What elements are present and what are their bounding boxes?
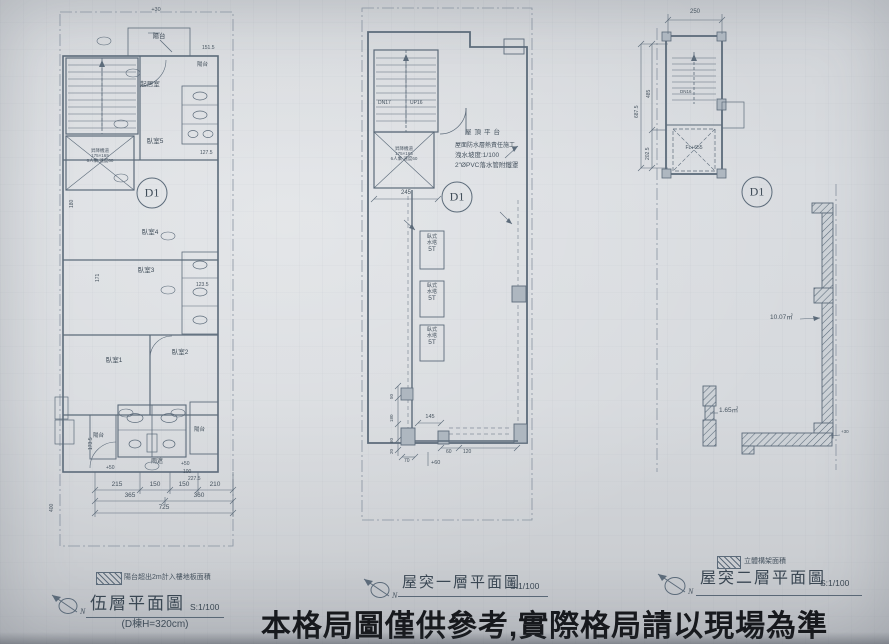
title-underline [696, 595, 862, 596]
room-label-bed2: 臥室2 [172, 350, 189, 357]
title-underline [398, 596, 548, 597]
legend-balcony-label: 陽台超出2m計入樓地板面積 [124, 574, 211, 581]
dim-label: 210 [210, 482, 221, 489]
room-label-bed3: 臥室3 [138, 268, 155, 275]
stair-dn-label: DN17 [378, 101, 391, 106]
unit-tag-d1: D1 [450, 191, 465, 204]
water-tank-label: 臥式 水塔 5T [421, 283, 443, 303]
plan-left-subtitle: (D棟H=320cm) [122, 620, 189, 631]
north-letter: N [688, 588, 693, 596]
dim-label: 151.5 [202, 46, 215, 51]
area-label-small: 1.65㎡ [719, 408, 738, 415]
room-label-canopy: 雨遮 [151, 459, 163, 465]
plan-left-shapes [55, 12, 236, 546]
water-tank-label: 臥式 水塔 5T [421, 234, 443, 254]
blueprint-page: 陽台 +30 151.5 127.5 123.5 起居室 陽台 臥室5 昇降機道… [0, 0, 889, 644]
dim-label: 120 [463, 450, 471, 455]
stair-up-label: UP16 [410, 101, 423, 106]
dim-label: 100 [183, 470, 191, 475]
room-label-bed5: 臥室5 [147, 139, 164, 146]
north-arrow-icon [658, 574, 685, 595]
floor-level-label: FL+655 [685, 146, 702, 151]
unit-tag-d1: D1 [145, 187, 160, 200]
tank-line3: 5T [421, 246, 443, 254]
dim-label: 250 [690, 9, 700, 15]
dim-label: +30 [151, 8, 160, 14]
plan-left-scale: S:1/100 [190, 603, 219, 612]
disclaimer-text: 本格局圖僅供參考,實際格局請以現場為準 [222, 601, 867, 644]
elevator-line3: 6人乘 速度60 [377, 156, 431, 161]
dim-label: 150 [179, 482, 190, 489]
note-roof-platform: 屋頂平台 [465, 130, 503, 137]
dim-label: 725 [159, 505, 170, 512]
dim-label: 150 [150, 482, 161, 489]
legend-frame-label: 立體構架面積 [744, 558, 786, 565]
room-label-balcony-right: 陽台 [197, 63, 208, 69]
room-label-balcony-bl: 陽台 [93, 434, 104, 440]
plan-right-scale: S:1/100 [820, 579, 849, 588]
room-label-living: 起居室 [140, 82, 160, 89]
stair-dn-label: DN16 [680, 90, 692, 95]
dim-label: 687.5 [635, 105, 640, 118]
dim-label: +50 [106, 466, 114, 471]
note-waterproofing: 屋面防水層熱責任施工 [455, 143, 515, 149]
dim-label: 171 [96, 274, 101, 282]
unit-tag-d1: D1 [750, 186, 765, 199]
water-tank-label: 臥式 水塔 5T [421, 327, 443, 347]
plan-left-title: 伍層平面圖 [90, 595, 185, 613]
north-arrow-icon [364, 579, 389, 598]
tank-line3: 5T [421, 295, 443, 303]
dim-label: 180 [390, 414, 395, 422]
room-label-bed1: 臥室1 [106, 358, 123, 365]
dim-label: 245 [401, 190, 411, 196]
floorplan-linework [0, 0, 889, 644]
dim-label: 60 [446, 450, 452, 455]
note-downspout: 2"ØPVC落水管附鐵罩 [455, 163, 518, 170]
area-label-big: 10.07㎡ [770, 315, 793, 322]
plan-right-title: 屋突二層平面圖 [700, 571, 826, 588]
legend-hatch-swatch [96, 572, 122, 585]
plan-right-shapes [638, 14, 840, 472]
elevator-shaft-label: 昇降機道 175×165 6人乘 速度60 [377, 146, 431, 162]
dim-label: 123.5 [196, 283, 209, 288]
room-label-bed4: 臥室4 [142, 230, 159, 237]
north-arrow-icon [52, 595, 77, 614]
dim-label: 20 [390, 449, 395, 454]
dim-label: 365 [125, 493, 136, 500]
dim-label: 127.5 [200, 151, 213, 156]
note-slope: 洩水坡度:1/100 [455, 153, 499, 160]
elevator-shaft-label: 昇降機道 175×165 6人乘 速度60 [70, 148, 130, 164]
elevator-line3: 6人乘 速度60 [70, 158, 130, 163]
title-underline [86, 617, 224, 618]
dim-label: 400 [50, 504, 55, 512]
plan-mid-title: 屋突一層平面圖 [402, 576, 521, 592]
room-label-balcony-br: 陽台 [194, 428, 205, 434]
plan-mid-shapes [362, 8, 532, 520]
room-label-balcony-top: 陽台 [153, 34, 166, 41]
dim-label: 50 [390, 394, 395, 399]
tank-line3: 5T [421, 339, 443, 347]
north-letter: N [80, 608, 85, 616]
dim-label: +50 [181, 462, 189, 467]
dim-label: 180 [70, 200, 75, 208]
dim-label: 215 [112, 482, 123, 489]
dim-label: +60 [431, 461, 440, 467]
dim-label: 60 [390, 438, 395, 443]
dim-label: 145 [425, 415, 434, 421]
dim-label: 202.5 [646, 147, 651, 160]
north-letter: N [392, 592, 397, 600]
legend-hatch-swatch [717, 556, 741, 569]
dim-label: 70 [404, 459, 410, 464]
dim-label: +30 [841, 430, 849, 435]
dim-label: 360 [194, 493, 205, 500]
dim-label: 485 [647, 90, 652, 98]
dim-label: 227.5 [188, 477, 201, 482]
plan-mid-scale: S:1/100 [510, 582, 539, 591]
